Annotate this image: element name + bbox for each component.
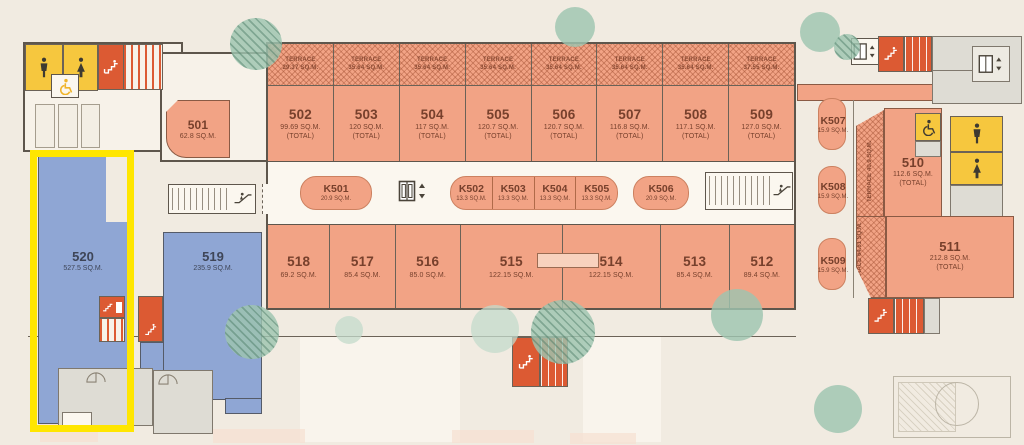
wheelchair-icon: [57, 78, 73, 95]
unit-area: 122.15 SQ.M.: [589, 271, 633, 280]
unit-519-room-step: [225, 398, 262, 414]
unit-total-label: (TOTAL): [682, 132, 709, 141]
unit-area: 235.9 SQ.M.: [193, 265, 232, 274]
stairs-icon: [873, 308, 889, 324]
unit-total-label: (TOTAL): [748, 132, 775, 141]
kiosk-K507: K50715.9 SQ.M.: [818, 98, 846, 150]
corridor-slab: [81, 104, 100, 148]
terrace-508: TERRACE35.64 SQ.M.: [663, 44, 729, 85]
terrace-area: 40.9 SQ.M.: [867, 140, 873, 170]
terrace-label: TERRACE: [746, 57, 776, 65]
unit-506: 506120.7 SQ.M.(TOTAL): [532, 86, 598, 161]
tree: [711, 289, 763, 341]
kiosk-K506: K50620.9 SQ.M.: [633, 176, 689, 210]
terrace-505: TERRACE35.64 SQ.M.: [466, 44, 532, 85]
kiosk-K502: K50213.3 SQ.M.: [451, 177, 493, 209]
terrace-area: 35.64 SQ.M.: [414, 65, 450, 73]
unit-number: 517: [351, 253, 374, 271]
kiosk-area: 20.9 SQ.M.: [646, 196, 676, 204]
stair-treads: [904, 36, 932, 72]
terrace-label: TERRACE: [615, 57, 645, 65]
kiosk-number: K509: [820, 255, 845, 268]
kiosk-K509: K50915.9 SQ.M.: [818, 238, 846, 290]
terrace-511: TERRACE64.61 SQ.M.: [856, 216, 886, 298]
kiosk-number: K502: [459, 183, 484, 196]
stairs-icon: [144, 323, 158, 337]
elevator-icon: [398, 179, 428, 203]
stairs-icon: [883, 46, 899, 62]
planter-circle: [935, 382, 979, 426]
terrace-511-label: TERRACE64.61 SQ.M.: [857, 217, 885, 297]
unit-area: 85.4 SQ.M.: [676, 271, 712, 280]
unit-area: 212.8 SQ.M.: [930, 255, 970, 264]
terrace-label: TERRACE: [549, 57, 579, 65]
unit-area: 120.7 SQ.M.: [544, 123, 584, 132]
tree: [230, 18, 282, 70]
floor-plan: 501 62.8 SQ.M. 520 527.5 SQ.M. 519 235.9…: [0, 0, 1024, 445]
unit-number: 519: [202, 249, 224, 265]
unit-509: 509127.0 SQ.M.(TOTAL): [729, 86, 794, 161]
service-core-wall: [932, 70, 972, 71]
terrace-509: TERRACE37.55 SQ.M.: [729, 44, 794, 85]
unit-area: 122.15 SQ.M.: [489, 271, 533, 280]
unit-511-label: 511 212.8 SQ.M. (TOTAL): [910, 230, 990, 282]
unit-number: 507: [618, 106, 641, 124]
door-swing-icon: [158, 374, 178, 385]
unit-number: 518: [287, 253, 310, 271]
unit-area: 89.4 SQ.M.: [744, 271, 780, 280]
top-unit-row: 50299.69 SQ.M.(TOTAL) 503120 SQ.M.(TOTAL…: [268, 86, 794, 162]
unit-501-label: 501 62.8 SQ.M.: [166, 108, 230, 152]
terrace-label: TERRACE: [417, 57, 447, 65]
escalator-west: [168, 184, 256, 214]
unit-number: 515: [500, 253, 523, 271]
unit-number: 508: [684, 106, 707, 124]
terrace-strip-east: [797, 84, 945, 101]
unit-total-label: (TOTAL): [287, 132, 314, 141]
unit-total-label: (TOTAL): [616, 132, 643, 141]
kiosk-number: K503: [501, 183, 526, 196]
unit-area: 120.7 SQ.M.: [478, 123, 518, 132]
escalator-treads: [709, 176, 771, 205]
unit-number: 512: [750, 253, 773, 271]
terrace-area: 37.55 SQ.M.: [744, 65, 780, 73]
walkway-patch: [570, 433, 636, 444]
elevator-icon: [978, 54, 1004, 74]
terrace-507: TERRACE35.64 SQ.M.: [597, 44, 663, 85]
unit-508: 508117.1 SQ.M.(TOTAL): [663, 86, 729, 161]
wheelchair-icon: [920, 119, 936, 136]
tree: [834, 34, 860, 60]
unit-517: 51785.4 SQ.M.: [330, 225, 395, 308]
unit-area: 99.69 SQ.M.: [280, 123, 320, 132]
unit-number: 502: [289, 106, 312, 124]
kiosk-area: 13.3 SQ.M.: [540, 196, 570, 204]
escalator-east: [705, 172, 793, 210]
kiosk-area: 13.3 SQ.M.: [581, 196, 611, 204]
service-room: [915, 141, 941, 157]
ground-patch: [583, 337, 661, 442]
kiosk-area: 15.9 SQ.M.: [818, 268, 848, 276]
kiosk-area: 13.3 SQ.M.: [456, 196, 486, 204]
terrace-area: 35.64 SQ.M.: [546, 65, 582, 73]
tree: [814, 385, 862, 433]
kiosk-number: K504: [542, 183, 567, 196]
kiosk-strip-K502-K505: K50213.3 SQ.M. K50313.3 SQ.M. K50413.3 S…: [450, 176, 618, 210]
escalator-icon: [772, 182, 792, 198]
unit-total-label: (TOTAL): [936, 264, 963, 273]
unit-number: 504: [421, 106, 444, 124]
accessible-restroom: [51, 74, 79, 98]
terrace-503: TERRACE35.64 SQ.M.: [334, 44, 400, 85]
stair-treads: [894, 298, 924, 334]
terrace-strip: TERRACE29.37 SQ.M. TERRACE35.64 SQ.M. TE…: [268, 44, 794, 86]
unit-number: 501: [188, 118, 209, 133]
terrace-label: TERRACE: [867, 173, 873, 202]
highlight-box-unit-520: [30, 150, 134, 432]
unit-area: 85.0 SQ.M.: [409, 271, 445, 280]
escalator-icon: [233, 190, 253, 206]
kiosk-area: 20.9 SQ.M.: [321, 196, 351, 204]
tree: [531, 300, 595, 364]
terrace-area: 35.64 SQ.M.: [678, 65, 714, 73]
unit-area: 112.6 SQ.M.: [893, 171, 933, 180]
female-restroom-icon: [971, 158, 983, 180]
stairs-icon: [103, 59, 120, 76]
unit-total-label: (TOTAL): [353, 132, 380, 141]
unit-519-label: 519 235.9 SQ.M.: [178, 244, 248, 278]
stair-treads: [123, 44, 163, 90]
tree: [471, 305, 519, 353]
unit-number: 510: [902, 155, 924, 171]
service-counter: [537, 253, 599, 268]
unit-area: 62.8 SQ.M.: [180, 133, 216, 142]
unit-total-label: (TOTAL): [419, 132, 446, 141]
tree: [555, 7, 595, 47]
kiosk-number: K506: [648, 183, 673, 196]
stairwell: [138, 296, 163, 342]
unit-area: 117 SQ.M.: [415, 123, 449, 132]
unit-area: 116.8 SQ.M.: [610, 123, 650, 132]
kiosk-K503: K50313.3 SQ.M.: [493, 177, 535, 209]
walkway-patch: [452, 430, 534, 443]
terrace-label: TERRACE: [680, 57, 710, 65]
terrace-504: TERRACE35.64 SQ.M.: [400, 44, 466, 85]
terrace-510: TERRACE40.9 SQ.M.: [856, 110, 884, 232]
terrace-area: 35.64 SQ.M.: [612, 65, 648, 73]
unit-502: 50299.69 SQ.M.(TOTAL): [268, 86, 334, 161]
unit-area: 85.4 SQ.M.: [344, 271, 380, 280]
unit-area: 69.2 SQ.M.: [280, 271, 316, 280]
terrace-area: 35.64 SQ.M.: [348, 65, 384, 73]
unit-number: 503: [355, 106, 378, 124]
kiosk-K505: K50513.3 SQ.M.: [576, 177, 617, 209]
male-restroom-icon: [971, 122, 983, 146]
tree: [225, 305, 279, 359]
unit-number: 516: [416, 253, 439, 271]
kiosk-area: 15.9 SQ.M.: [818, 194, 848, 202]
kiosk-area: 15.9 SQ.M.: [818, 128, 848, 136]
kiosk-area: 13.3 SQ.M.: [498, 196, 528, 204]
unit-area: 120 SQ.M.: [349, 123, 383, 132]
corridor-slab: [35, 104, 55, 148]
walkway-patch: [213, 429, 305, 443]
unit-number: 513: [683, 253, 706, 271]
terrace-area: 29.37 SQ.M.: [282, 65, 318, 73]
male-restroom-icon: [38, 57, 50, 79]
stairs-icon: [518, 354, 535, 371]
unit-503: 503120 SQ.M.(TOTAL): [334, 86, 400, 161]
kiosk-K508: K50815.9 SQ.M.: [818, 166, 846, 214]
terrace-label: TERRACE: [483, 57, 513, 65]
mens-restroom-east: [950, 116, 1003, 152]
tree: [335, 316, 363, 344]
service-room: [924, 298, 940, 334]
stairwell: [878, 36, 904, 72]
stairwell: [868, 298, 894, 334]
unit-number: 509: [750, 106, 773, 124]
terrace-area: 35.64 SQ.M.: [480, 65, 516, 73]
kiosk-number: K501: [323, 183, 348, 196]
kiosk-number: K505: [584, 183, 609, 196]
unit-518: 51869.2 SQ.M.: [268, 225, 330, 308]
terrace-label: TERRACE: [285, 57, 315, 65]
escalator-treads: [172, 188, 230, 210]
kiosk-K504: K50413.3 SQ.M.: [535, 177, 577, 209]
unit-total-label: (TOTAL): [550, 132, 577, 141]
corridor-opening: [262, 184, 270, 214]
unit-504: 504117 SQ.M.(TOTAL): [400, 86, 466, 161]
unit-total-label: (TOTAL): [899, 180, 926, 189]
unit-number: 511: [939, 239, 961, 255]
womens-restroom-east: [950, 152, 1003, 185]
unit-507: 507116.8 SQ.M.(TOTAL): [597, 86, 663, 161]
unit-505: 505120.7 SQ.M.(TOTAL): [466, 86, 532, 161]
unit-area: 127.0 SQ.M.: [741, 123, 781, 132]
unit-total-label: (TOTAL): [484, 132, 511, 141]
kiosk-number: K507: [820, 115, 845, 128]
unit-number: 506: [552, 106, 575, 124]
ground-patch: [300, 337, 460, 442]
unit-number: 505: [487, 106, 510, 124]
terrace-label: TERRACE: [351, 57, 381, 65]
unit-number: 514: [600, 253, 623, 271]
unit-area: 117.1 SQ.M.: [676, 123, 716, 132]
stairwell: [98, 44, 124, 90]
terrace-area: 64.61 SQ.M.: [857, 223, 863, 257]
elevator-room: [972, 46, 1010, 82]
kiosk-K501: K50120.9 SQ.M.: [300, 176, 372, 210]
accessible-restroom-east: [915, 113, 941, 141]
kiosk-number: K508: [820, 181, 845, 194]
corridor-slab: [58, 104, 78, 148]
terrace-510-label: TERRACE40.9 SQ.M.: [857, 111, 883, 231]
terrace-506: TERRACE35.64 SQ.M.: [532, 44, 598, 85]
unit-516: 51685.0 SQ.M.: [396, 225, 461, 308]
bottom-unit-row: 51869.2 SQ.M. 51785.4 SQ.M. 51685.0 SQ.M…: [268, 224, 794, 308]
